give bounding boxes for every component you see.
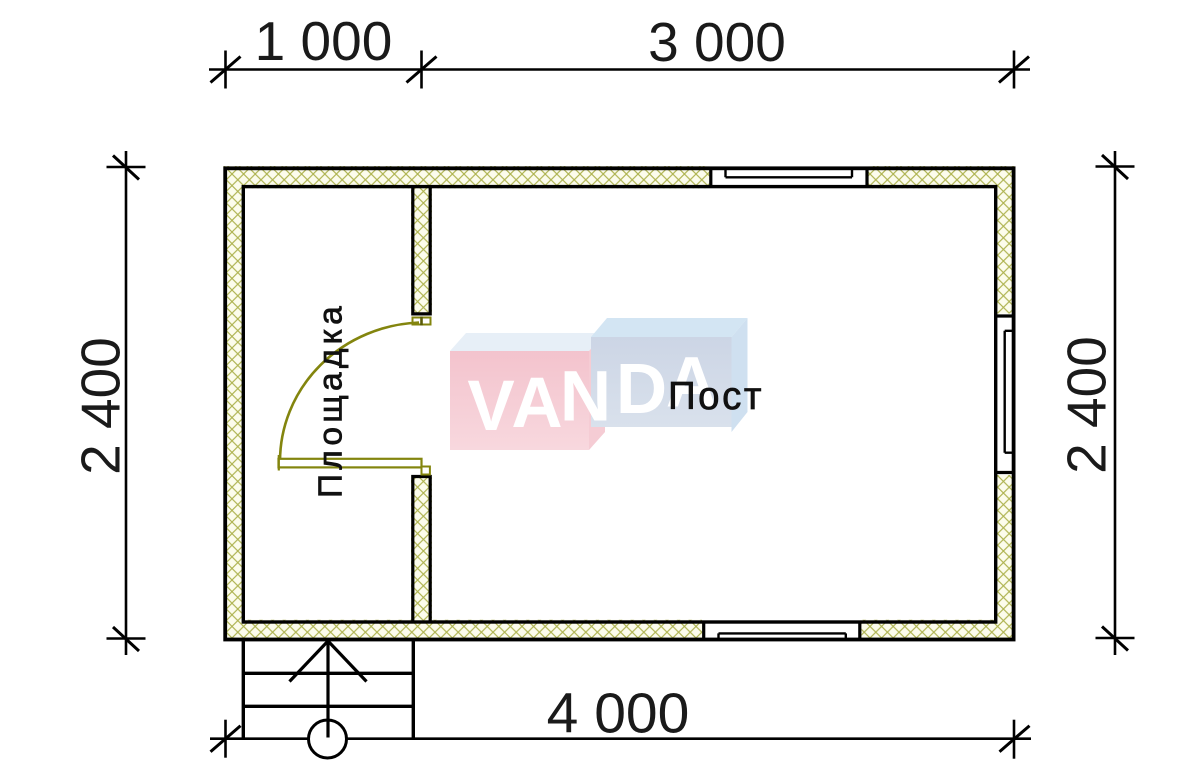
svg-text:V: V — [467, 367, 514, 446]
svg-text:4 000: 4 000 — [547, 682, 690, 746]
svg-text:A: A — [511, 364, 562, 443]
svg-text:2 400: 2 400 — [70, 337, 132, 475]
svg-text:Площадка: Площадка — [313, 302, 350, 498]
svg-text:Пост: Пост — [668, 375, 764, 418]
svg-text:1 000: 1 000 — [255, 10, 393, 72]
svg-text:N: N — [560, 358, 611, 437]
svg-text:3 000: 3 000 — [648, 11, 786, 73]
svg-text:D: D — [616, 350, 667, 429]
svg-text:2 400: 2 400 — [1056, 336, 1118, 474]
